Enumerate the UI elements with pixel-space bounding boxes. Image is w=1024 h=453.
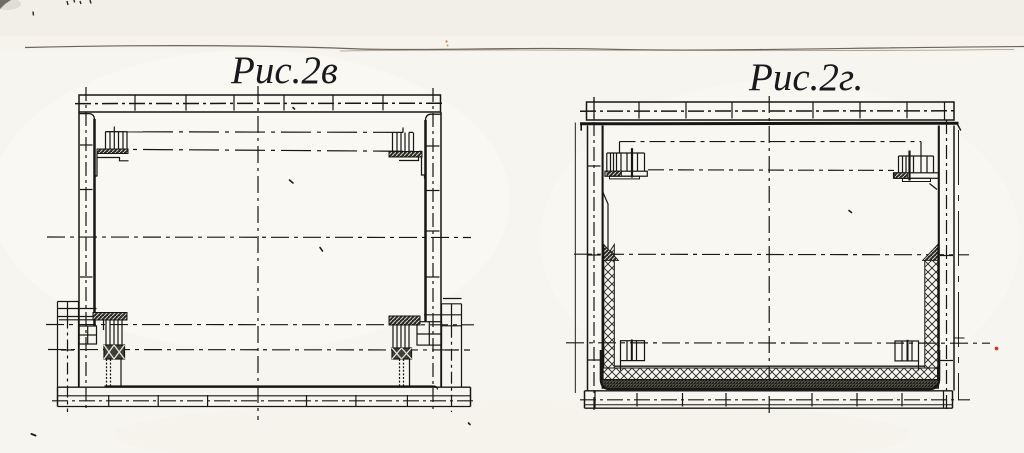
svg-text:Рис.2в: Рис.2в <box>230 49 338 92</box>
svg-text:Рис.2г.: Рис.2г. <box>748 56 863 99</box>
